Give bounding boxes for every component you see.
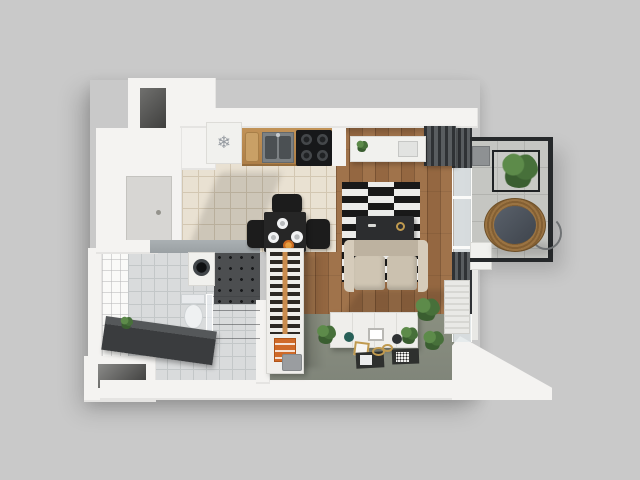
photo-frame xyxy=(368,328,384,341)
coffee-table xyxy=(356,216,414,240)
burner xyxy=(317,150,328,161)
toilet-bowl xyxy=(184,304,203,329)
sofa-armrest xyxy=(418,240,428,292)
burner xyxy=(301,150,312,161)
balcony-plant xyxy=(500,152,538,188)
cutting-board xyxy=(245,132,259,162)
bathroom-top-wall xyxy=(96,240,158,254)
burner xyxy=(301,134,312,145)
sofa-seat-cushion xyxy=(387,256,417,290)
dining-chair xyxy=(272,194,302,214)
balcony-storage-box xyxy=(472,146,490,166)
console-plant xyxy=(356,140,368,152)
plate xyxy=(277,218,288,229)
small-stool xyxy=(282,354,302,371)
remote xyxy=(368,224,376,227)
kitchen-counter-end xyxy=(332,128,346,166)
fridge: ❄ xyxy=(206,122,242,164)
bottom-wall xyxy=(100,380,492,400)
sink-basin xyxy=(279,136,291,159)
sofa-seat-cushion xyxy=(354,256,385,290)
burner xyxy=(317,134,328,145)
wine-bottles xyxy=(270,252,300,334)
teal-dish xyxy=(344,332,354,342)
bunched-blinds-corner xyxy=(424,126,456,166)
wine-rack-cast-shadow xyxy=(304,256,324,368)
art-print xyxy=(396,352,409,362)
window-mullion xyxy=(452,196,472,199)
sofa-armrest xyxy=(344,240,354,292)
floorplan-render: ❄ xyxy=(0,0,640,480)
radiator xyxy=(444,280,470,334)
floor-plant xyxy=(414,297,440,321)
sofa-backrest xyxy=(344,240,428,256)
ac-unit xyxy=(470,242,492,270)
window-mullion xyxy=(452,246,472,249)
round-mirror xyxy=(382,344,393,352)
dining-chair xyxy=(306,219,330,249)
washing-machine-door xyxy=(193,259,210,276)
bathroom-plant xyxy=(120,316,133,329)
plate xyxy=(268,232,279,243)
toilet-tank xyxy=(181,294,205,304)
bottom-right-wall-corner xyxy=(452,332,552,400)
floor-plant xyxy=(422,330,444,350)
floor-plant xyxy=(316,324,336,344)
door-handle xyxy=(156,210,161,215)
balcony-railing-bottom xyxy=(470,258,553,262)
entry-door-panel xyxy=(126,176,172,248)
vanity-cabinet xyxy=(212,296,260,352)
console-tray xyxy=(398,141,418,157)
sink-basin xyxy=(265,136,277,159)
balcony-railing-top xyxy=(470,137,553,141)
gold-tray xyxy=(396,222,405,231)
fridge-snowflake-icon: ❄ xyxy=(217,135,231,152)
faucet xyxy=(276,133,280,137)
egg-chair-cushion xyxy=(494,206,536,244)
sideboard-plant xyxy=(400,326,418,344)
art-print xyxy=(360,355,372,365)
